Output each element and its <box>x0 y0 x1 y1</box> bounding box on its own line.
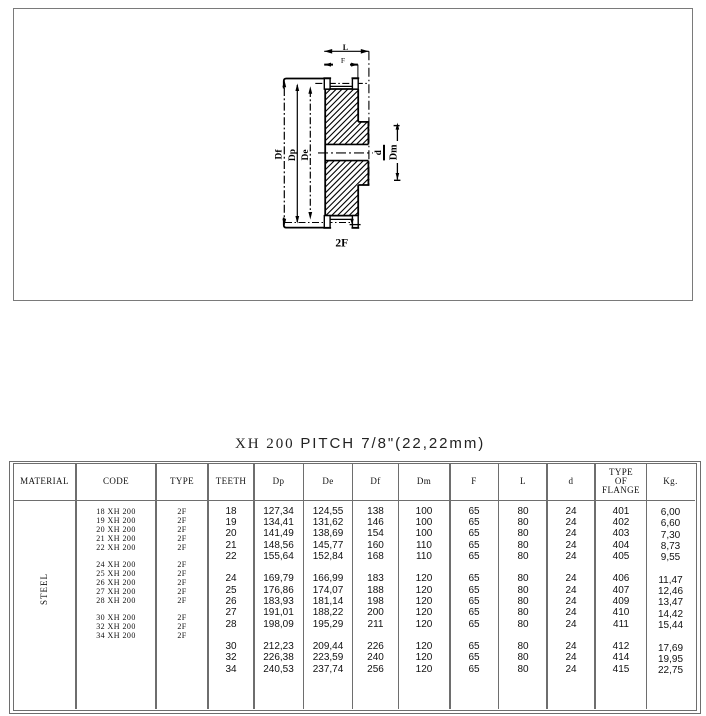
svg-text:Dp: Dp <box>288 149 298 161</box>
svg-text:Df: Df <box>275 149 285 160</box>
svg-text:F: F <box>341 56 345 65</box>
svg-text:d: d <box>373 150 383 155</box>
svg-text:2F: 2F <box>335 237 348 249</box>
svg-text:L: L <box>343 43 348 52</box>
svg-text:De: De <box>301 149 311 160</box>
svg-text:Dm: Dm <box>389 144 400 160</box>
